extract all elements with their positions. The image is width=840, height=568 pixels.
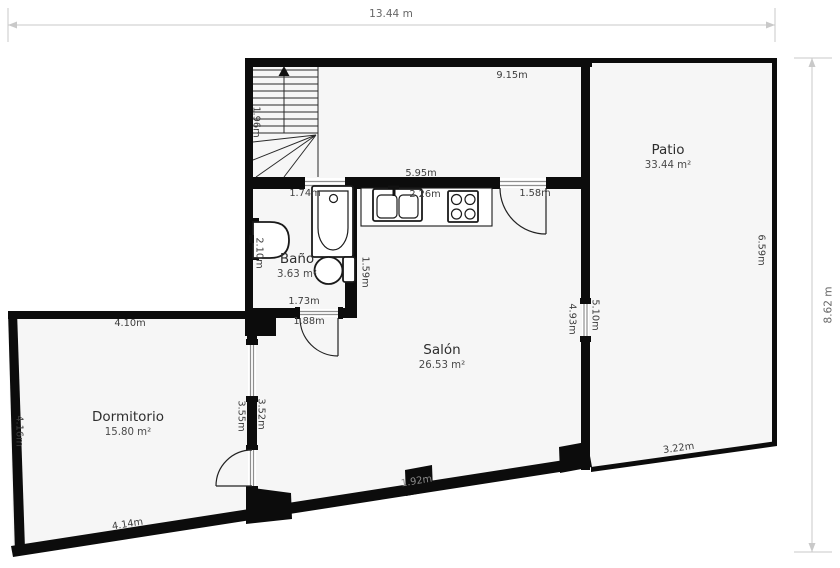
dimension-top: 13.44 m [8, 8, 775, 42]
measurement-dorm-window-right: 3.52m [256, 398, 267, 429]
room-bano: Baño 3.63 m² [277, 251, 317, 280]
floor-plan-canvas[interactable]: 13.44 m 8.62 m [0, 0, 840, 568]
dimension-right: 8.62 m [794, 58, 835, 552]
measurement-bath-door: 1.88m [293, 316, 324, 327]
measurement-basin-wall: 2.10m [254, 237, 265, 268]
room-area-salon: 26.53 m² [419, 360, 465, 371]
measurement-dorm-left: 4.16m [14, 415, 25, 446]
measurement-stairs-width: 1.96m [251, 106, 262, 137]
measurement-top-span: 9.15m [496, 70, 527, 81]
toilet-icon [315, 257, 356, 284]
room-area-patio: 33.44 m² [645, 160, 691, 171]
stove-icon [448, 191, 478, 222]
measurement-toilet-wall: 1.59m [360, 256, 371, 287]
room-name-dormitorio: Dormitorio [92, 409, 164, 425]
measurement-dorm-top: 4.10m [114, 318, 145, 329]
measurement-bath-width: 1.73m [288, 296, 319, 307]
measurement-kitchen-counter: 2.26m [409, 189, 440, 200]
room-name-bano: Baño [280, 251, 314, 267]
room-area-bano: 3.63 m² [277, 269, 317, 280]
measurement-patio-right: 6.59m [756, 234, 767, 265]
measurement-bath-tub-wall: 1.74m [289, 188, 320, 199]
overall-width-label: 13.44 m [369, 8, 413, 20]
room-patio: Patio 33.44 m² [645, 142, 691, 171]
building-interior [8, 58, 777, 551]
floor-plan-page: 13.44 m 8.62 m [0, 0, 840, 568]
measurement-salon-door: 1.58m [519, 188, 550, 199]
overall-height-label: 8.62 m [823, 287, 835, 324]
measurement-salon-window-inner: 4.93m [567, 303, 578, 334]
room-area-dormitorio: 15.80 m² [105, 427, 151, 438]
measurement-dorm-window-left: 3.55m [236, 400, 247, 431]
room-name-patio: Patio [651, 142, 684, 158]
room-name-salon: Salón [423, 342, 460, 358]
measurement-kitchen-wall: 5.95m [405, 168, 436, 179]
room-salon: Salón 26.53 m² [419, 342, 465, 371]
measurement-salon-window-outer: 5.10m [590, 299, 601, 330]
